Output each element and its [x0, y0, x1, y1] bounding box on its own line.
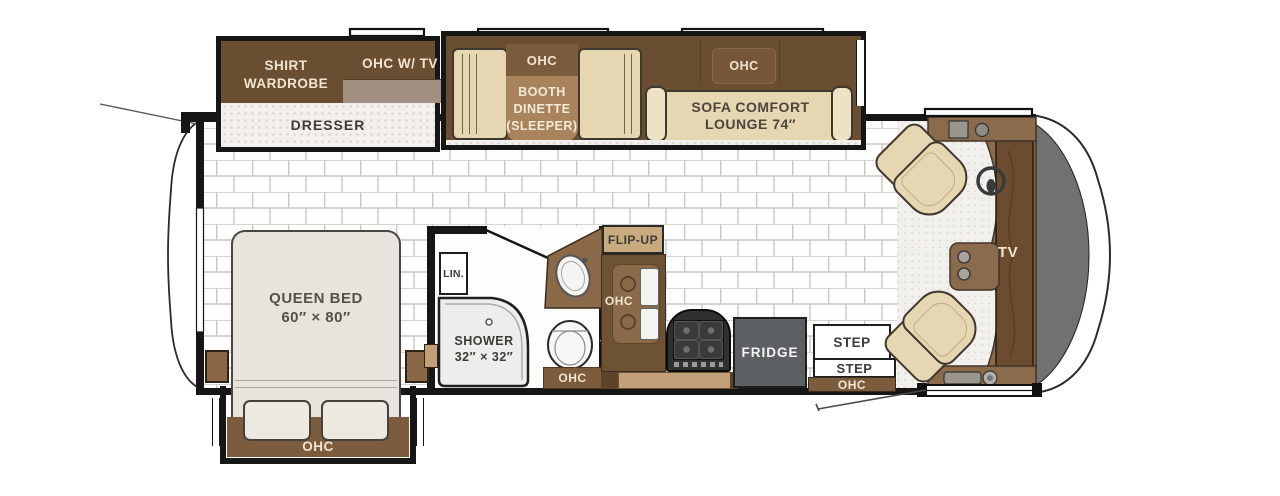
- bench-seam: [624, 54, 625, 134]
- overhead-front-console: [928, 117, 1036, 141]
- bed-slide-rail: [212, 398, 220, 446]
- dinette-bench-right: [578, 48, 642, 140]
- slideout-side-window: [856, 40, 865, 106]
- bench-seam: [469, 54, 470, 134]
- galley-base-cabinet: [618, 372, 733, 389]
- faucet-knob: [620, 276, 636, 292]
- pillow: [321, 400, 389, 441]
- cooktop-burners: [673, 320, 724, 360]
- kitchen-sink-bowl: [640, 268, 659, 306]
- dinette-bench-left: [452, 48, 508, 140]
- bench-seam: [476, 54, 477, 134]
- sofa-back-seam: [700, 40, 701, 86]
- cabinet-end-block: [730, 372, 738, 389]
- shower: [439, 298, 528, 386]
- sofa-back-seam: [779, 40, 780, 86]
- blanket-line: [235, 380, 397, 381]
- nightstand-left: [205, 350, 229, 383]
- dresser: DRESSER: [221, 103, 435, 147]
- bath-cabinet-end: [424, 344, 438, 368]
- floorplan-canvas: SHIRT WARDROBE OHC W/ TV DRESSER OHC BOO…: [0, 0, 1280, 496]
- queen-bed-label: QUEEN BED 60″ × 80″: [243, 288, 389, 328]
- bed-slide-rail: [416, 398, 424, 446]
- center-console: [950, 243, 999, 290]
- cupholder: [958, 251, 970, 263]
- burner: [674, 321, 699, 340]
- sofa-armrest: [645, 86, 667, 142]
- cabinet-end-block: [601, 372, 618, 389]
- burner: [699, 340, 724, 359]
- wardrobe-counter: [343, 79, 455, 103]
- bed-slideout: OHC: [220, 386, 416, 464]
- bench-seam: [462, 54, 463, 134]
- kitchen-sink-bowl: [640, 308, 659, 340]
- dinette-sofa-slideout: OHC BOOTH DINETTE (SLEEPER) OHC SOFA COM…: [441, 31, 866, 150]
- slideout-floor-seam: [446, 140, 861, 145]
- sofa: SOFA COMFORT LOUNGE 74″: [649, 90, 852, 142]
- rear-wall-window: [197, 208, 204, 332]
- bedroom-slideout: SHIRT WARDROBE OHC W/ TV DRESSER: [216, 36, 440, 152]
- cupholder: [958, 268, 970, 280]
- shower-drain: [486, 319, 492, 325]
- toilet: [548, 321, 592, 369]
- bath-faucet: [583, 258, 588, 263]
- pillow: [243, 400, 311, 441]
- dinette-table: BOOTH DINETTE (SLEEPER): [506, 76, 578, 142]
- cooktop: [666, 309, 731, 372]
- bench-seam: [631, 54, 632, 134]
- sofa-armrest: [831, 86, 853, 142]
- ohc-with-tv-cabinet: OHC W/ TV: [345, 53, 455, 73]
- cooktop-controls: [674, 362, 723, 367]
- burner: [674, 340, 699, 359]
- kitchen-counter: [601, 254, 666, 372]
- faucet-knob: [620, 314, 636, 330]
- shirt-wardrobe-cabinet: SHIRT WARDROBE: [229, 55, 343, 95]
- dinette-ohc-cabinet: OHC: [506, 44, 578, 76]
- burner: [699, 321, 724, 340]
- sofa-ohc-cabinet: OHC: [712, 48, 776, 84]
